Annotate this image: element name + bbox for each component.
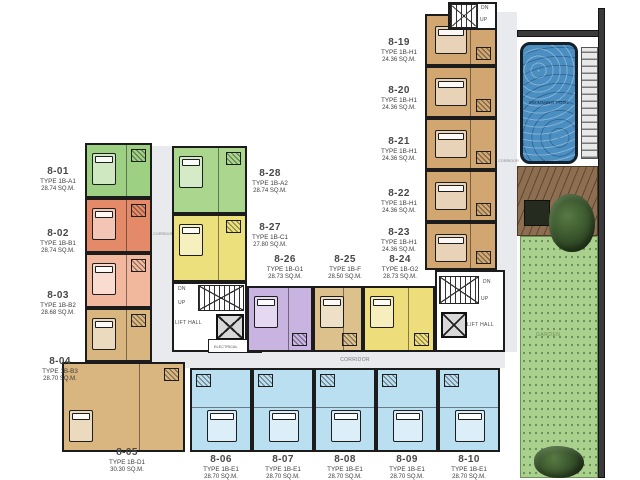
unit-8-02: [85, 198, 152, 253]
bed-icon: [207, 410, 237, 442]
swimming-pool-label: SWIMMING POOL: [523, 100, 575, 105]
unit-8-24: [363, 286, 435, 352]
stairs-east-down-label: DN: [483, 279, 491, 285]
planter-icon: [524, 200, 550, 226]
bed-icon: [320, 296, 344, 328]
unit-8-09: [376, 368, 438, 452]
unit-8-03: [85, 253, 152, 308]
bed-icon: [69, 410, 93, 442]
bathroom-icon: [476, 47, 491, 60]
stairs-north-down-label: DN: [481, 5, 489, 11]
stairs-west-icon: [198, 285, 244, 311]
stairs-north-up-label: UP: [480, 17, 488, 23]
corridor-east-label: CORRIDOR: [498, 158, 519, 162]
bed-icon: [92, 153, 116, 185]
unit-label-8-23: 8-23 TYPE 1B-H1 24.36 SQ.M.: [363, 226, 435, 255]
unit-label-8-19: 8-19 TYPE 1B-H1 24.36 SQ.M.: [363, 36, 435, 65]
bathroom-icon: [476, 203, 491, 216]
stairs-east-icon: [439, 276, 479, 304]
bathroom-icon: [196, 374, 211, 387]
bed-icon: [455, 410, 485, 442]
bed-icon: [92, 208, 116, 240]
tree-icon: [549, 194, 595, 252]
bed-icon: [179, 224, 203, 256]
stairs-west-down-label: DN: [178, 286, 186, 292]
bed-icon: [435, 26, 467, 54]
unit-8-10: [438, 368, 500, 452]
bathroom-icon: [476, 99, 491, 112]
corridor-west-label: CORRIDOR: [153, 231, 174, 235]
bed-icon: [331, 410, 361, 442]
corridor-south-label: CORRIDOR: [322, 357, 388, 363]
stairs-north-icon: [450, 4, 478, 28]
unit-8-04: [85, 308, 152, 362]
lift-hall-west-label: LIFT HALL: [175, 320, 202, 326]
garden-label: GARDEN: [536, 332, 560, 338]
bed-icon: [370, 296, 394, 328]
elevator-west-icon: [216, 314, 244, 340]
unit-label-8-01: 8-01 TYPE 1B-A1 28.74 SQ.M.: [22, 165, 94, 194]
bed-icon: [254, 296, 278, 328]
bathroom-icon: [131, 259, 146, 272]
bed-icon: [269, 410, 299, 442]
bathroom-icon: [258, 374, 273, 387]
unit-8-22: [425, 170, 497, 222]
bathroom-icon: [292, 333, 307, 346]
bed-icon: [393, 410, 423, 442]
elevator-east-icon: [441, 312, 467, 338]
bathroom-icon: [131, 314, 146, 327]
sun-loungers-icon: [581, 47, 598, 159]
unit-8-21: [425, 118, 497, 170]
bathroom-icon: [382, 374, 397, 387]
bathroom-icon: [131, 149, 146, 162]
unit-label-8-21: 8-21 TYPE 1B-H1 24.36 SQ.M.: [363, 135, 435, 164]
tree-icon: [534, 446, 584, 478]
unit-label-8-28: 8-28 TYPE 1B-A2 28.74 SQ.M.: [234, 167, 306, 196]
bathroom-icon: [476, 151, 491, 164]
unit-8-08: [314, 368, 376, 452]
floor-plan-canvas: CORRIDOR CORRIDOR CORRIDOR DN UP LIFT HA…: [0, 0, 640, 480]
electrical-room-label: ELECTRICAL: [214, 344, 238, 348]
bed-icon: [435, 78, 467, 106]
bed-icon: [92, 318, 116, 350]
bathroom-icon: [342, 333, 357, 346]
unit-8-26: [247, 286, 313, 352]
bathroom-icon: [131, 204, 146, 217]
unit-8-20: [425, 66, 497, 118]
bathroom-icon: [414, 333, 429, 346]
corridor-west: [152, 146, 172, 362]
lift-hall-east-label: LIFT HALL: [467, 322, 494, 328]
bed-icon: [92, 263, 116, 295]
stairs-east-up-label: UP: [481, 296, 489, 302]
bathroom-icon: [444, 374, 459, 387]
unit-label-8-05: 8-05 TYPE 1B-D1 30.30 SQ.M.: [91, 446, 163, 475]
garden: [520, 236, 598, 478]
bed-icon: [179, 156, 203, 188]
perimeter-wall-top: [517, 30, 605, 37]
unit-label-8-02: 8-02 TYPE 1B-B1 28.74 SQ.M.: [22, 227, 94, 256]
unit-8-07: [252, 368, 314, 452]
bed-icon: [435, 130, 467, 158]
bathroom-icon: [164, 368, 179, 381]
bathroom-icon: [226, 152, 241, 165]
unit-label-8-10: 8-10 TYPE 1B-E1 28.70 SQ.M.: [433, 453, 505, 480]
unit-label-8-04: 8-04 TYPE 1B-B3 28.70 SQ.M.: [24, 355, 96, 384]
unit-label-8-24: 8-24 TYPE 1B-G2 28.73 SQ.M.: [364, 253, 436, 282]
unit-8-25: [313, 286, 363, 352]
bed-icon: [435, 182, 467, 210]
perimeter-wall-right: [598, 8, 605, 478]
unit-8-01: [85, 143, 152, 198]
unit-8-06: [190, 368, 252, 452]
bathroom-icon: [476, 251, 491, 264]
unit-label-8-20: 8-20 TYPE 1B-H1 24.36 SQ.M.: [363, 84, 435, 113]
unit-label-8-27: 8-27 TYPE 1B-C1 27.80 SQ.M.: [234, 221, 306, 250]
stairs-west-up-label: UP: [178, 300, 186, 306]
bathroom-icon: [320, 374, 335, 387]
unit-label-8-22: 8-22 TYPE 1B-H1 24.36 SQ.M.: [363, 187, 435, 216]
bed-icon: [435, 234, 467, 262]
unit-label-8-03: 8-03 TYPE 1B-B2 28.68 SQ.M.: [22, 289, 94, 318]
swimming-pool: SWIMMING POOL: [520, 42, 578, 164]
